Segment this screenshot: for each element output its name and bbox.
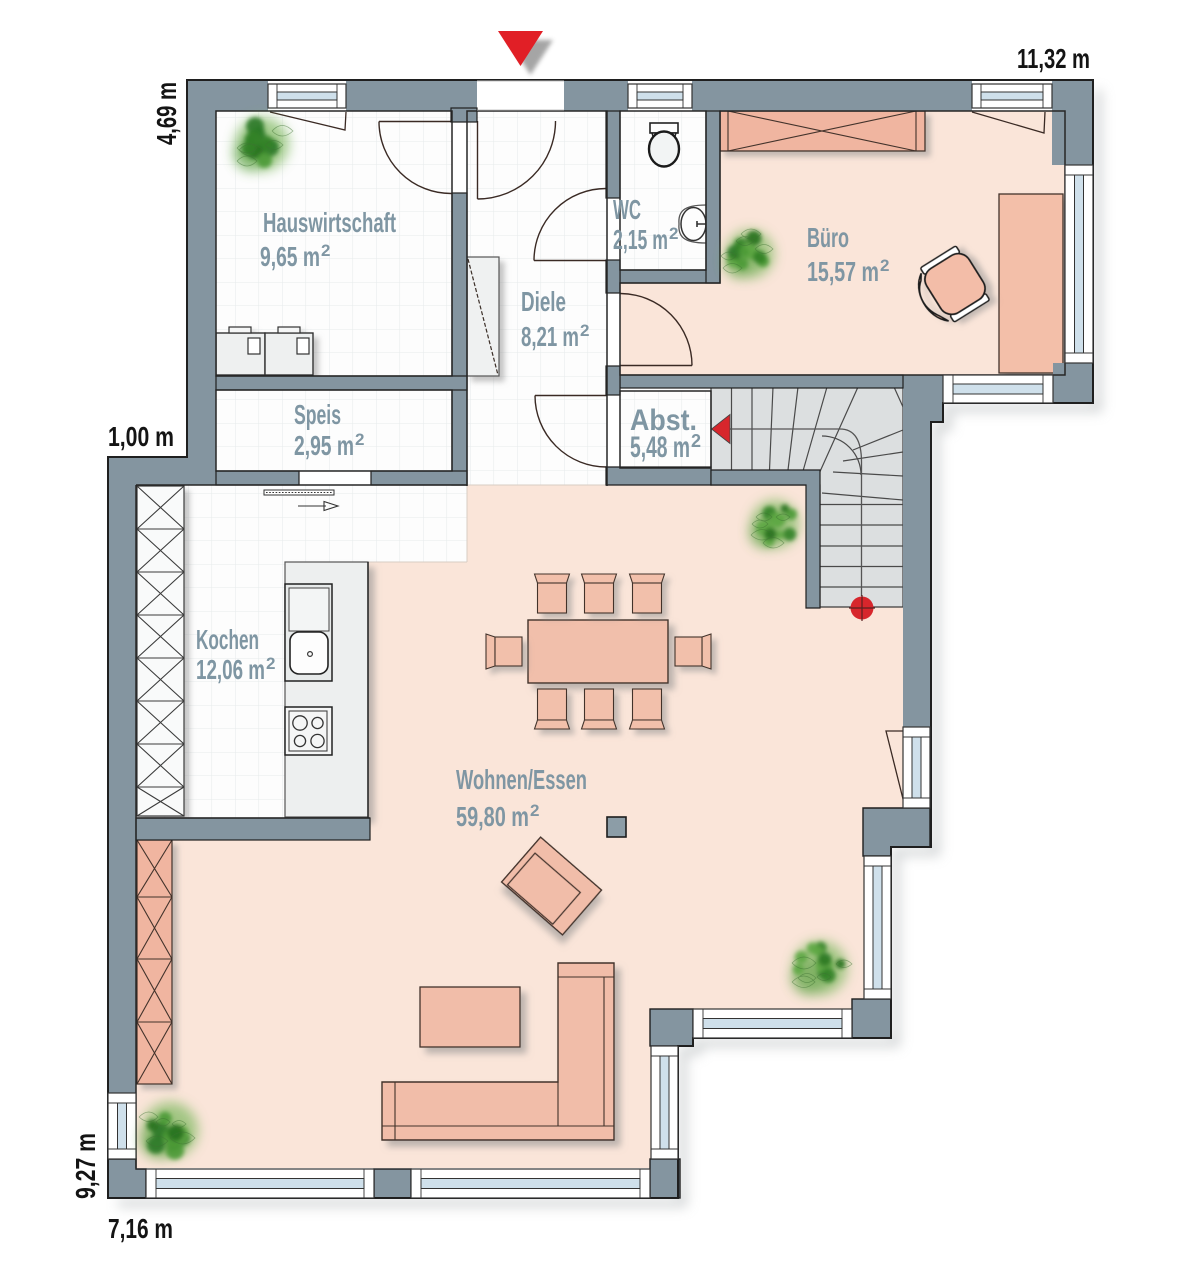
svg-text:4,69 m: 4,69 m bbox=[151, 82, 182, 145]
svg-text:2: 2 bbox=[530, 801, 539, 820]
svg-text:WC: WC bbox=[613, 194, 641, 225]
svg-text:2: 2 bbox=[355, 430, 364, 449]
svg-text:15,57 m: 15,57 m bbox=[807, 256, 879, 287]
svg-text:2: 2 bbox=[880, 256, 889, 275]
svg-text:Büro: Büro bbox=[807, 222, 849, 253]
svg-text:Wohnen/Essen: Wohnen/Essen bbox=[456, 764, 587, 795]
svg-text:Diele: Diele bbox=[521, 286, 566, 317]
svg-text:8,21 m: 8,21 m bbox=[521, 321, 579, 352]
svg-text:Speis: Speis bbox=[294, 399, 341, 430]
svg-text:2: 2 bbox=[266, 654, 275, 673]
svg-text:Hauswirtschaft: Hauswirtschaft bbox=[263, 207, 396, 238]
svg-text:5,48 m: 5,48 m bbox=[630, 431, 690, 464]
svg-text:2,95 m: 2,95 m bbox=[294, 430, 354, 461]
svg-text:2: 2 bbox=[691, 431, 701, 451]
svg-text:9,65 m: 9,65 m bbox=[260, 241, 320, 272]
svg-text:2: 2 bbox=[580, 321, 589, 340]
svg-text:2,15 m: 2,15 m bbox=[613, 224, 668, 255]
svg-text:1,00 m: 1,00 m bbox=[108, 421, 174, 452]
svg-text:2: 2 bbox=[321, 241, 330, 260]
svg-text:12,06 m: 12,06 m bbox=[196, 654, 265, 685]
svg-text:9,27 m: 9,27 m bbox=[70, 1133, 101, 1199]
svg-text:11,32 m: 11,32 m bbox=[1017, 43, 1090, 74]
svg-text:7,16 m: 7,16 m bbox=[108, 1213, 173, 1244]
svg-text:2: 2 bbox=[669, 224, 678, 243]
svg-text:Kochen: Kochen bbox=[196, 624, 259, 655]
svg-text:59,80 m: 59,80 m bbox=[456, 801, 529, 832]
